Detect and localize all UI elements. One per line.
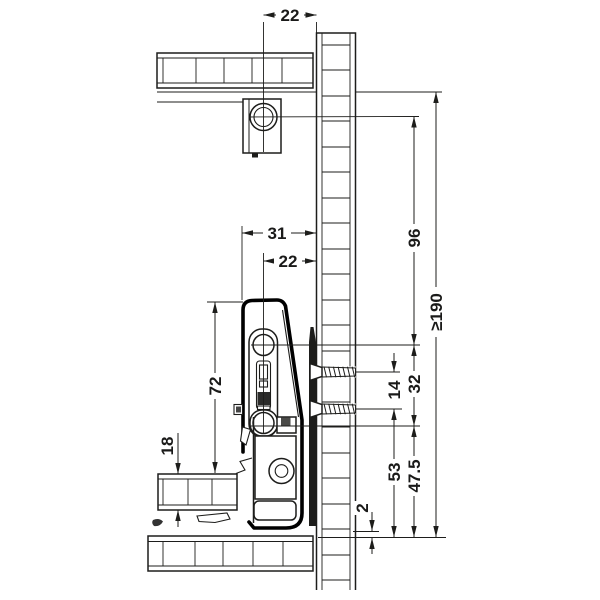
dim-47-5: 47.5	[405, 456, 424, 496]
anti-tilt-hook	[152, 513, 230, 526]
dim-22-mid: 22	[274, 252, 302, 271]
release-lever	[241, 427, 251, 445]
dim-22-top-label: 22	[281, 6, 300, 25]
dim-22-mid-label: 22	[279, 252, 298, 271]
dim-72-label: 72	[206, 377, 225, 396]
dim-53-label: 53	[385, 463, 404, 482]
dim-47-5-label: 47.5	[405, 459, 424, 492]
dim-96-label: 96	[405, 229, 424, 248]
screw-upper	[310, 364, 356, 381]
dim-31: 31	[263, 224, 291, 243]
dim-14-label: 14	[385, 380, 404, 399]
dim-2-label: 2	[353, 503, 372, 512]
dim-22-top: 22	[276, 6, 304, 25]
dim-18: 18	[158, 433, 177, 459]
dim-min190: ≥190	[427, 287, 446, 337]
dim-32-label: 32	[405, 375, 424, 394]
drawer-bottom-panel	[158, 474, 237, 510]
front-bracket-slide	[152, 300, 302, 528]
technical-drawing-canvas: 22 31 22 96 ≥190 32 14 53	[0, 0, 600, 600]
installation-diagram: 22 31 22 96 ≥190 32 14 53	[0, 0, 600, 600]
dim-53: 53	[385, 459, 404, 485]
dim-18-label: 18	[158, 437, 177, 456]
top-rail	[157, 53, 316, 102]
dim-96: 96	[405, 224, 424, 252]
dim-14: 14	[385, 377, 404, 403]
rear-bracket	[243, 99, 281, 158]
panel-core-segments	[322, 45, 350, 580]
dim-72: 72	[206, 373, 225, 399]
mounting-strip	[309, 327, 316, 526]
screw-lower	[310, 401, 356, 418]
dim-31-label: 31	[268, 224, 287, 243]
dim-32: 32	[405, 371, 424, 397]
rear-bracket-tab	[252, 153, 258, 158]
dim-min190-label: ≥190	[427, 293, 446, 331]
bottom-rail	[148, 536, 313, 571]
dim-2: 2	[353, 501, 372, 515]
